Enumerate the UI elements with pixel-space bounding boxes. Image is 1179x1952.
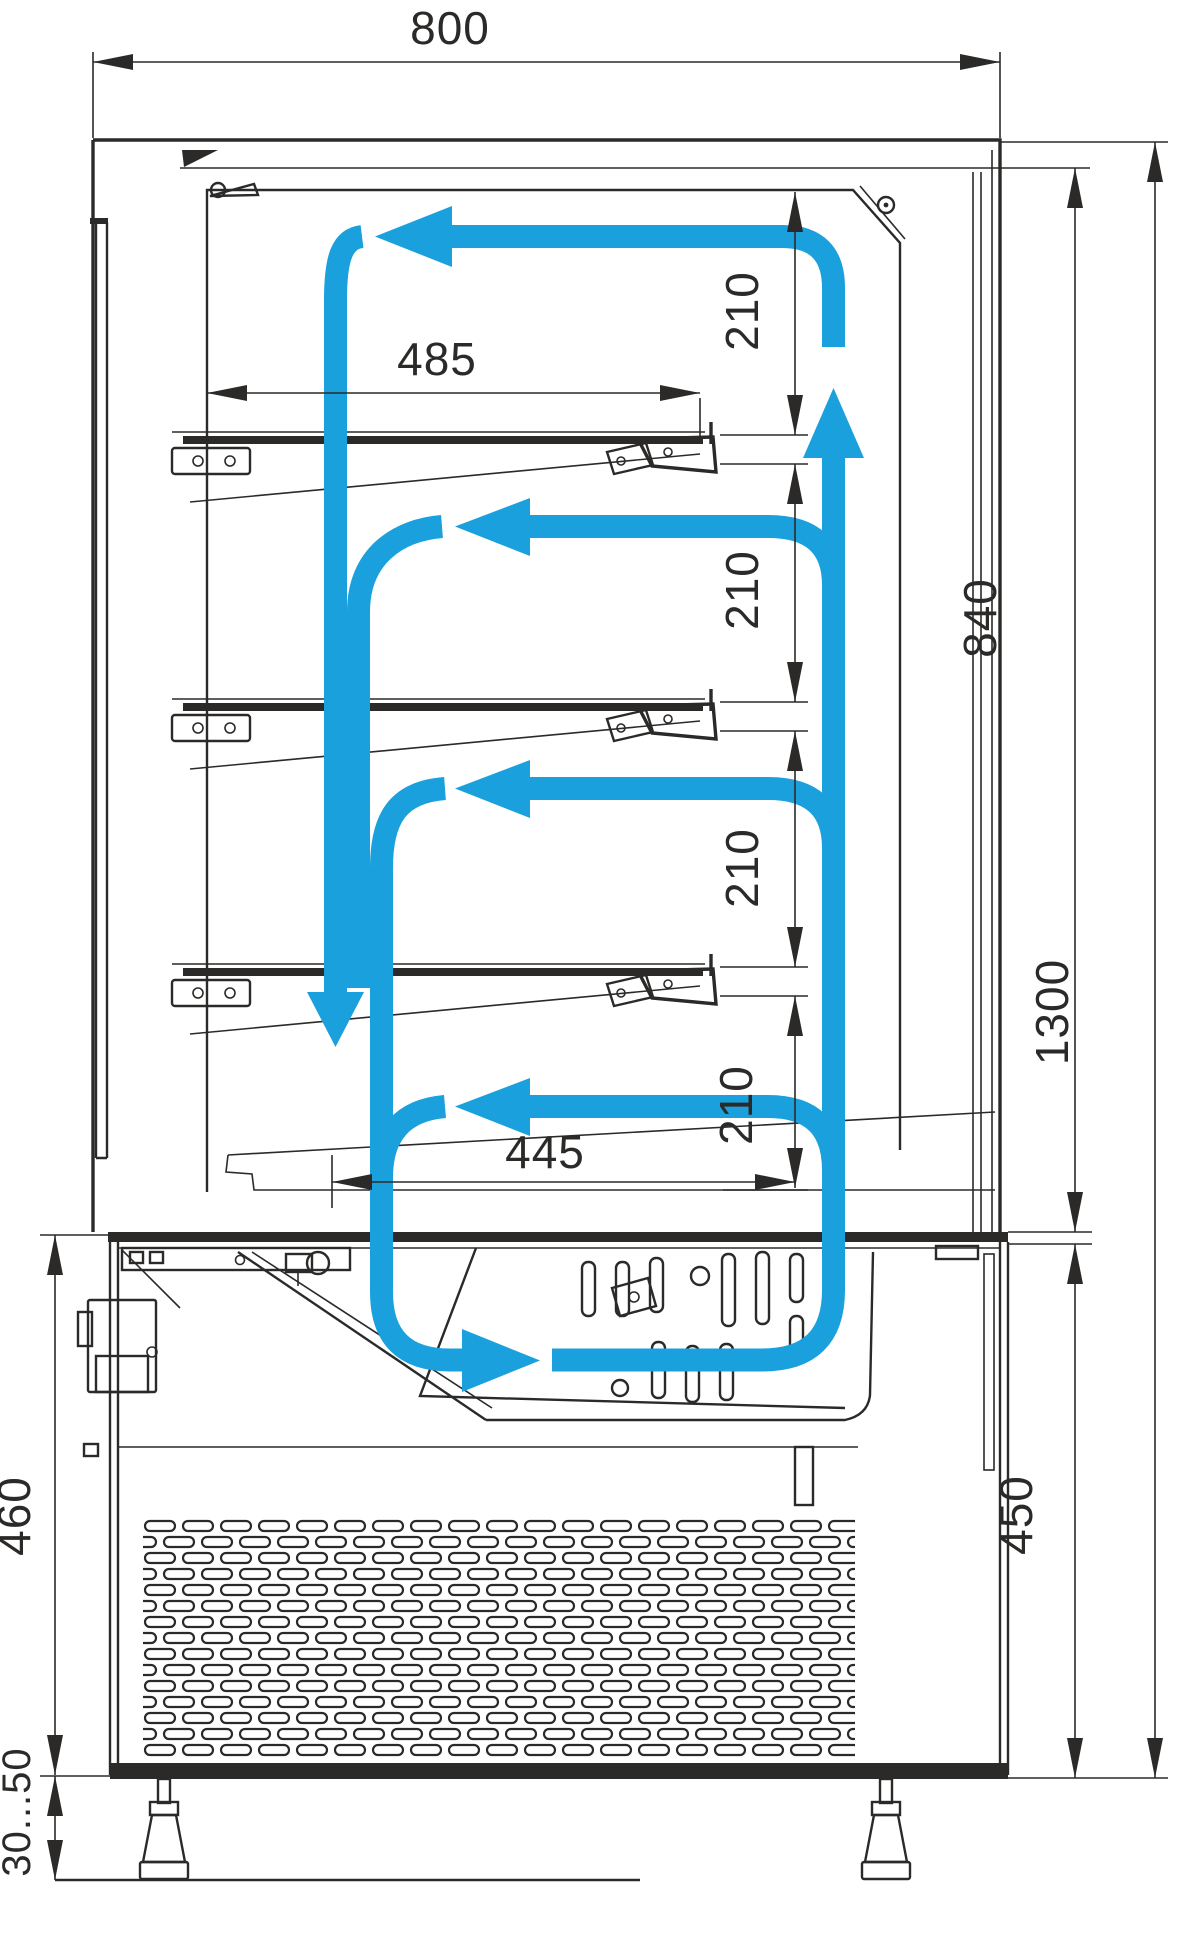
dim-label-485: 485 — [397, 333, 477, 385]
dim-label-840: 840 — [954, 578, 1006, 658]
refrigerated-display-case-diagram: 800 485 445 210 210 210 210 840 — [0, 0, 1179, 1952]
dim-label-210-2: 210 — [716, 550, 768, 630]
dim-label-445: 445 — [505, 1126, 585, 1178]
technical-drawing-page: 800 485 445 210 210 210 210 840 — [0, 0, 1179, 1952]
condensate-basin — [238, 1252, 873, 1420]
lamp-wedge — [182, 150, 218, 167]
dim-shelf-gaps-210: 210 210 210 210 — [710, 190, 808, 1190]
evaporator-cover — [420, 1248, 845, 1408]
dim-label-460: 460 — [0, 1476, 40, 1556]
dim-485: 485 — [207, 333, 700, 440]
dim-label-210-3: 210 — [716, 828, 768, 908]
adjustable-foot-right — [862, 1779, 910, 1879]
shelf-1 — [172, 422, 716, 502]
ventilation-grille — [143, 1518, 855, 1758]
machine-compartment — [78, 1232, 1008, 1779]
dim-label-210-4: 210 — [710, 1065, 762, 1145]
dim-840: 840 — [954, 168, 1092, 1232]
display-cabinet-outline — [93, 140, 1168, 1232]
dim-800: 800 — [93, 2, 1000, 138]
dim-label-800: 800 — [410, 2, 490, 54]
shelf-3 — [172, 954, 716, 1034]
shelf-2 — [172, 689, 716, 769]
shelves — [172, 422, 716, 1034]
dim-label-450: 450 — [990, 1475, 1042, 1555]
display-chamber — [182, 150, 995, 1192]
dim-label-1300: 1300 — [1026, 959, 1078, 1065]
dim-450: 450 — [990, 1244, 1092, 1778]
dim-label-210-1: 210 — [716, 271, 768, 351]
airflow-arrows — [307, 206, 864, 1392]
drain-pipe — [795, 1447, 813, 1505]
base-frame — [110, 1763, 1008, 1779]
condenser-pipe — [984, 1254, 994, 1470]
dim-label-foot-range: 30...50 — [0, 1747, 39, 1876]
adjustable-foot-left — [140, 1779, 188, 1879]
